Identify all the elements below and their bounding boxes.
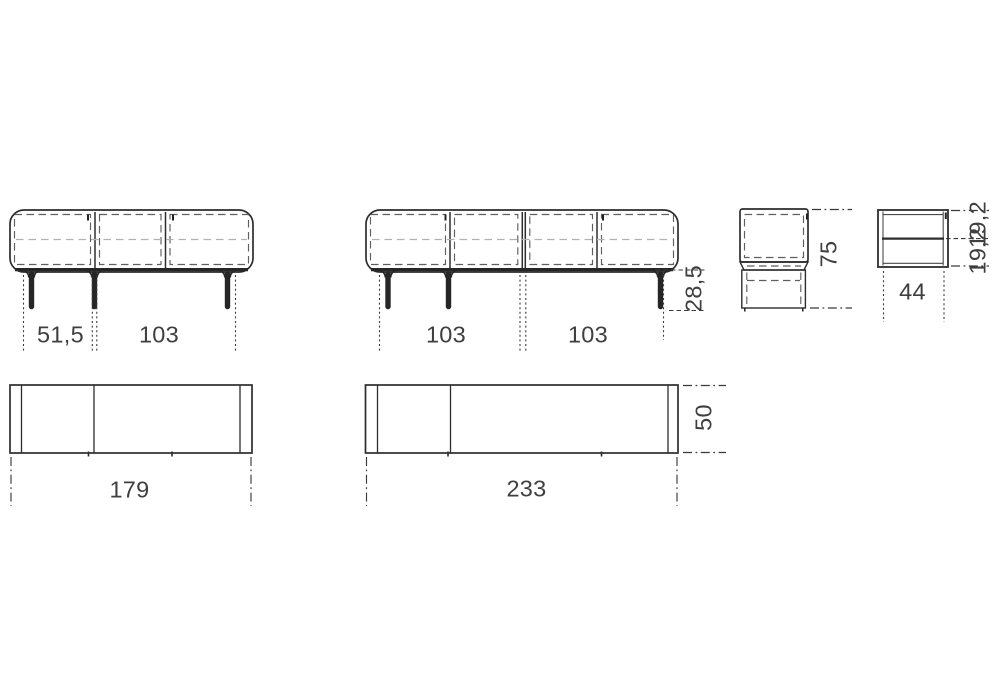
furniture-dimension-drawing: 51,5 103 103 103 28,5 [0, 0, 1000, 700]
sideboard-a-front-view: 51,5 103 [10, 210, 253, 352]
module-detail-view: 44 19,2 19,2 [878, 201, 991, 322]
sideboard-side-view: 75 [740, 209, 852, 312]
dim-label-75: 75 [816, 241, 842, 268]
side-view-body-outline [740, 209, 808, 262]
dim-label-233: 233 [506, 476, 546, 502]
plan-view-b: 233 50 [366, 385, 727, 506]
dim-label-103-b-left: 103 [426, 322, 466, 348]
sideboard-a-body-outline [10, 210, 253, 272]
plan-a-outline [10, 385, 252, 453]
technical-drawing-canvas: 51,5 103 103 103 28,5 [0, 0, 1000, 700]
dim-label-103-b-right: 103 [568, 322, 608, 348]
dim-label-179: 179 [109, 477, 149, 503]
dim-label-50: 50 [691, 404, 717, 431]
plan-b-outline [366, 385, 679, 453]
side-view-leg-panel [742, 270, 806, 308]
dim-label-44: 44 [899, 279, 926, 305]
dim-label-19-2-lower: 19,2 [965, 228, 991, 275]
dim-label-51-5: 51,5 [37, 322, 84, 348]
dim-label-103-a: 103 [139, 322, 179, 348]
plan-view-a: 179 [10, 385, 252, 506]
dim-label-28-5: 28,5 [681, 265, 707, 312]
sideboard-b-front-view: 103 103 28,5 [366, 210, 707, 352]
